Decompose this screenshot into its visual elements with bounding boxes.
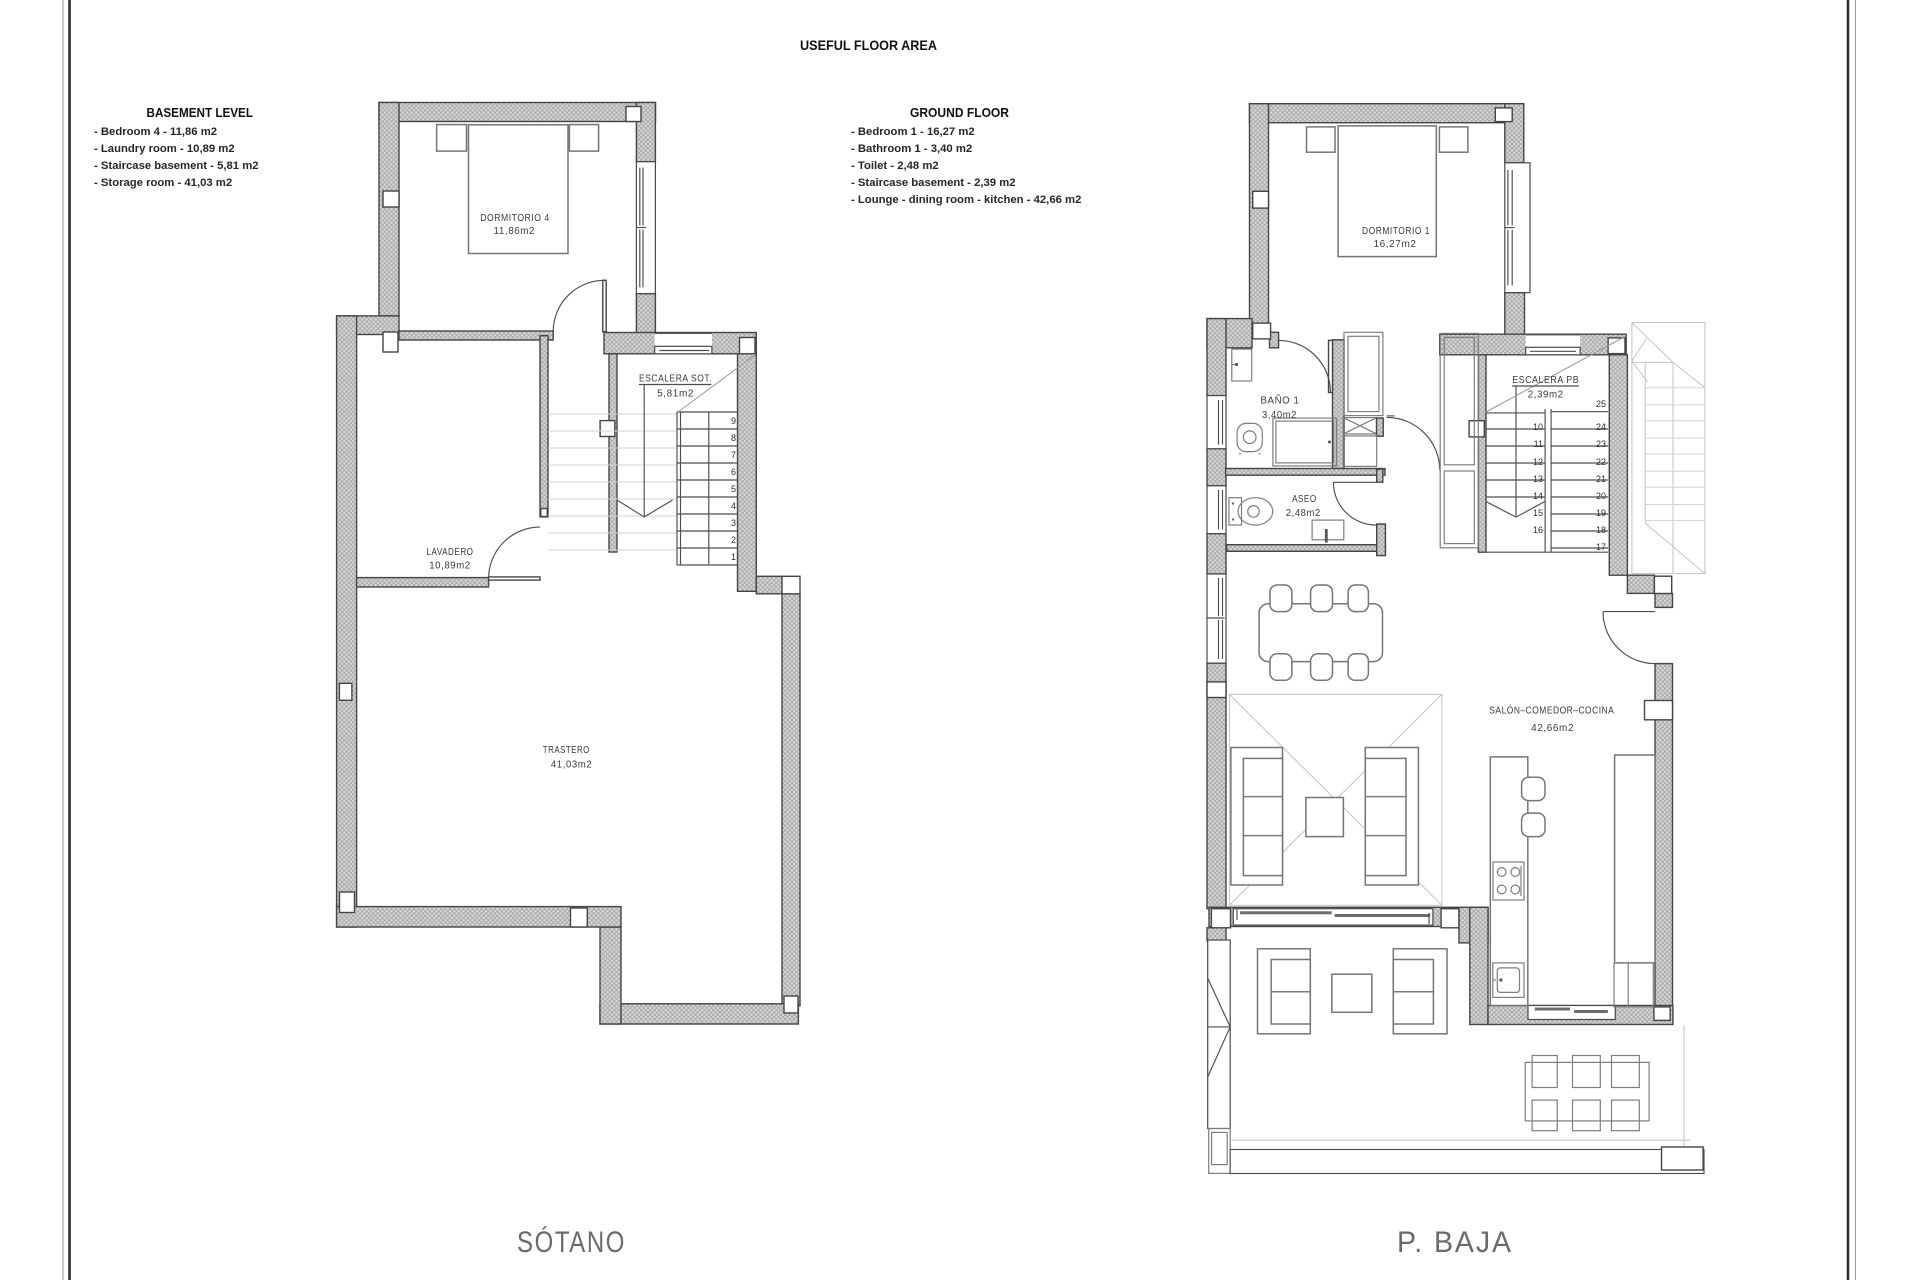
- svg-text:- Bathroom 1 - 3,40 m2: - Bathroom 1 - 3,40 m2: [851, 143, 972, 155]
- svg-text:2: 2: [731, 535, 736, 545]
- svg-text:LAVADERO: LAVADERO: [427, 547, 474, 558]
- svg-text:BASEMENT LEVEL: BASEMENT LEVEL: [147, 105, 254, 120]
- svg-text:10,89m2: 10,89m2: [429, 561, 471, 572]
- svg-text:5: 5: [731, 484, 736, 494]
- svg-text:ESCALERA SOT.: ESCALERA SOT.: [639, 374, 712, 385]
- svg-text:GROUND FLOOR: GROUND FLOOR: [910, 105, 1010, 120]
- svg-text:6: 6: [731, 467, 736, 477]
- svg-text:19: 19: [1596, 508, 1606, 518]
- svg-text:- Storage room - 41,03 m2: - Storage room - 41,03 m2: [94, 177, 232, 189]
- svg-text:SÓTANO: SÓTANO: [517, 1226, 626, 1259]
- svg-text:USEFUL FLOOR AREA: USEFUL FLOOR AREA: [800, 37, 937, 53]
- svg-text:13: 13: [1533, 474, 1543, 484]
- svg-text:- Lounge - dining room - kitch: - Lounge - dining room - kitchen - 42,66…: [851, 194, 1081, 206]
- svg-text:1: 1: [731, 552, 736, 562]
- svg-text:11,86m2: 11,86m2: [494, 226, 536, 237]
- svg-text:12: 12: [1533, 457, 1543, 467]
- svg-text:DORMITORIO 4: DORMITORIO 4: [480, 213, 550, 224]
- svg-text:15: 15: [1533, 508, 1543, 518]
- svg-text:24: 24: [1596, 422, 1606, 432]
- svg-text:- Toilet - 2,48 m2: - Toilet - 2,48 m2: [851, 160, 939, 172]
- svg-text:- Staircase basement - 5,81 m2: - Staircase basement - 5,81 m2: [94, 160, 259, 172]
- svg-text:3,40m2: 3,40m2: [1262, 410, 1297, 421]
- svg-text:- Staircase basement - 2,39 m2: - Staircase basement - 2,39 m2: [851, 177, 1016, 189]
- svg-text:9: 9: [731, 416, 736, 426]
- svg-text:18: 18: [1596, 525, 1606, 535]
- svg-text:20: 20: [1596, 491, 1606, 501]
- svg-text:- Bedroom 1 - 16,27 m2: - Bedroom 1 - 16,27 m2: [851, 126, 975, 138]
- svg-text:TRASTERO: TRASTERO: [543, 745, 590, 756]
- svg-text:17: 17: [1596, 542, 1606, 552]
- svg-text:3: 3: [731, 518, 736, 528]
- svg-text:5,81m2: 5,81m2: [657, 389, 694, 400]
- svg-text:2,39m2: 2,39m2: [1528, 390, 1564, 401]
- svg-text:25: 25: [1596, 399, 1606, 409]
- svg-text:42,66m2: 42,66m2: [1531, 723, 1574, 734]
- svg-text:P. BAJA: P. BAJA: [1397, 1226, 1513, 1259]
- svg-text:DORMITORIO 1: DORMITORIO 1: [1362, 226, 1430, 237]
- svg-text:SALÓN–COMEDOR–COCINA: SALÓN–COMEDOR–COCINA: [1489, 704, 1614, 717]
- svg-text:16: 16: [1533, 525, 1543, 535]
- svg-text:16,27m2: 16,27m2: [1374, 239, 1417, 250]
- svg-text:ESCALERA PB: ESCALERA PB: [1512, 375, 1579, 386]
- svg-text:- Bedroom 4 - 11,86 m2: - Bedroom 4 - 11,86 m2: [94, 126, 217, 138]
- svg-text:23: 23: [1596, 439, 1606, 449]
- svg-text:BAÑO 1: BAÑO 1: [1261, 394, 1300, 407]
- svg-text:2,48m2: 2,48m2: [1286, 508, 1321, 519]
- svg-text:7: 7: [731, 450, 736, 460]
- svg-text:ASEO: ASEO: [1292, 494, 1317, 505]
- svg-text:22: 22: [1596, 457, 1606, 467]
- svg-text:- Laundry room - 10,89 m2: - Laundry room - 10,89 m2: [94, 143, 235, 155]
- svg-text:14: 14: [1533, 491, 1543, 501]
- svg-text:8: 8: [731, 433, 736, 443]
- svg-text:11: 11: [1534, 439, 1543, 449]
- svg-text:21: 21: [1596, 474, 1606, 484]
- svg-text:4: 4: [731, 501, 736, 511]
- svg-text:10: 10: [1533, 422, 1543, 432]
- svg-text:41,03m2: 41,03m2: [551, 760, 593, 771]
